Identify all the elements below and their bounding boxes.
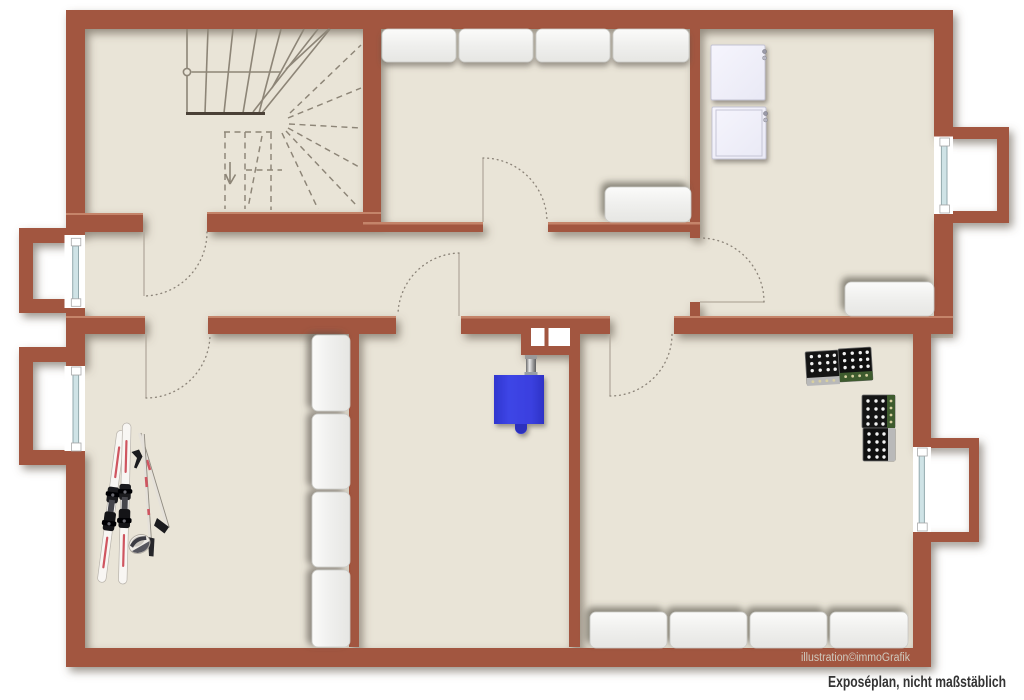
svg-text:Exposéplan, nicht maßstäblich: Exposéplan, nicht maßstäblich [828, 674, 1006, 691]
svg-text:illustration©immoGrafik: illustration©immoGrafik [801, 652, 910, 664]
